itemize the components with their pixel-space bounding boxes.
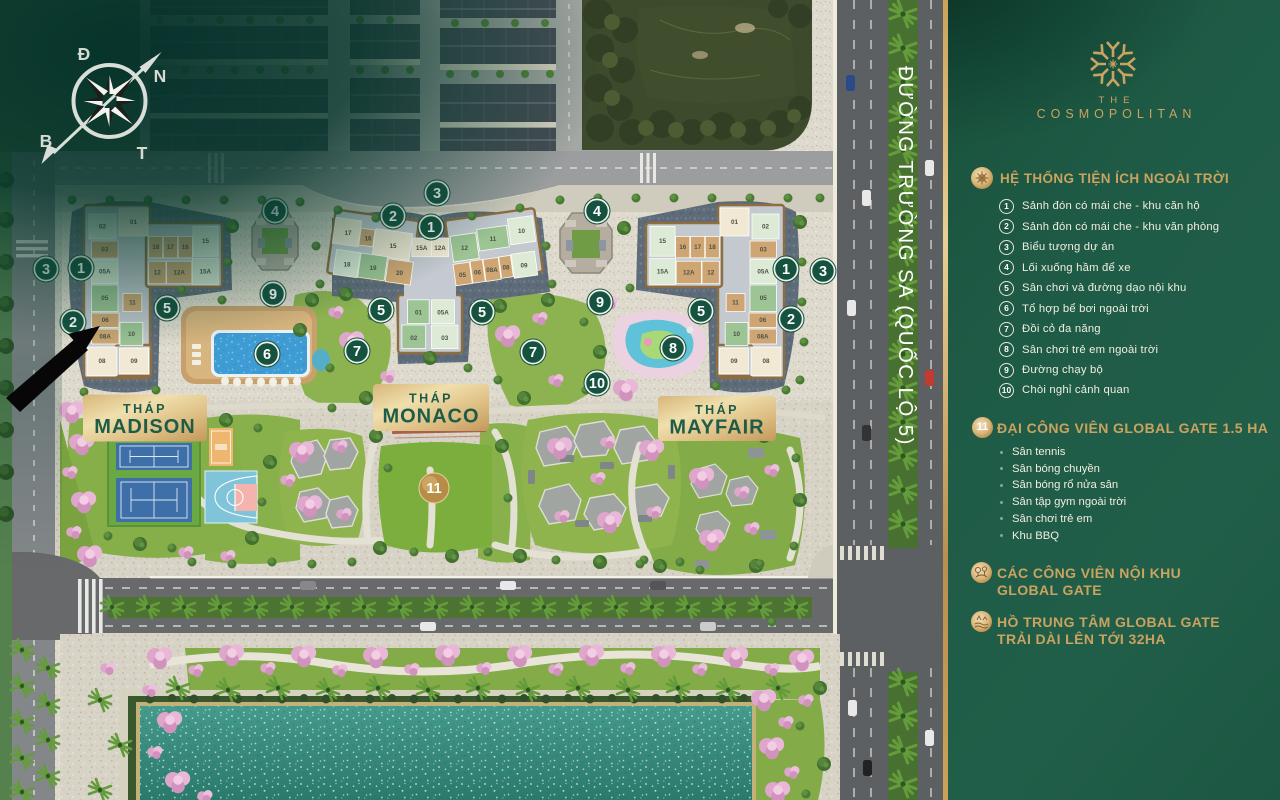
svg-text:Đ: Đ [78,44,91,64]
svg-text:N: N [154,66,167,86]
svg-text:T: T [137,143,148,163]
svg-text:B: B [40,131,53,151]
